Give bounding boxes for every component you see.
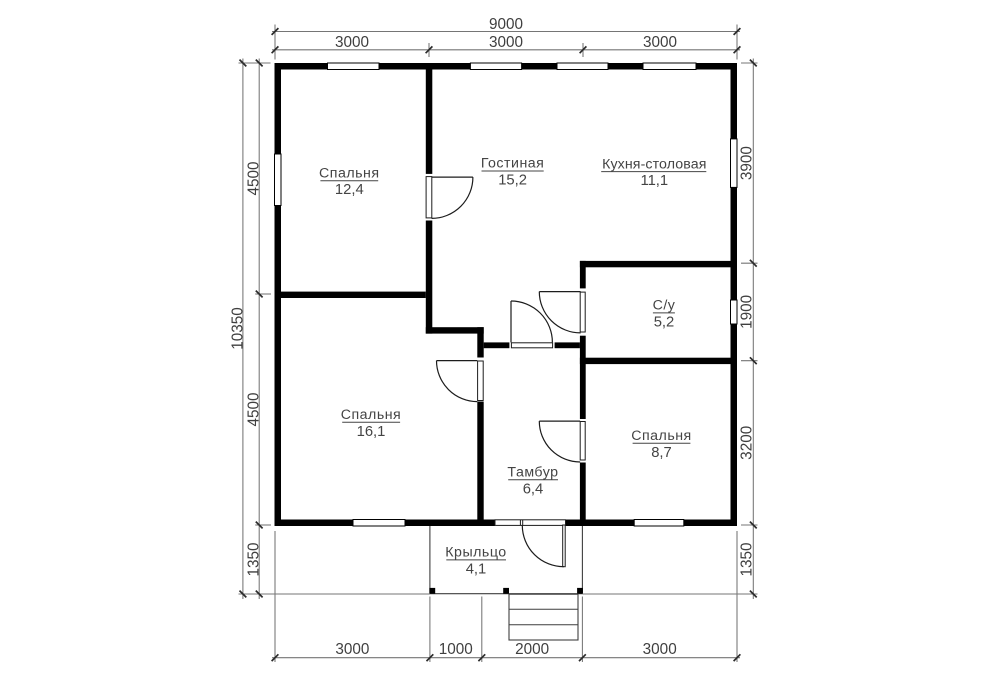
svg-text:8,7: 8,7 xyxy=(651,445,672,461)
svg-text:3000: 3000 xyxy=(643,641,677,658)
svg-text:3000: 3000 xyxy=(335,641,369,658)
svg-text:1350: 1350 xyxy=(245,542,262,576)
svg-text:3000: 3000 xyxy=(335,34,369,51)
svg-text:Крыльцо: Крыльцо xyxy=(445,545,506,561)
svg-text:Спальня: Спальня xyxy=(631,428,692,444)
svg-text:15,2: 15,2 xyxy=(498,173,527,189)
svg-text:6,4: 6,4 xyxy=(523,481,544,497)
svg-text:2000: 2000 xyxy=(515,641,549,658)
svg-text:3900: 3900 xyxy=(739,146,756,180)
svg-text:Спальня: Спальня xyxy=(319,165,380,181)
svg-text:1900: 1900 xyxy=(739,295,756,329)
svg-text:С/у: С/у xyxy=(653,298,676,314)
svg-text:9000: 9000 xyxy=(489,16,523,33)
svg-text:Гостиная: Гостиная xyxy=(481,156,545,172)
svg-text:4500: 4500 xyxy=(245,392,262,426)
svg-text:1000: 1000 xyxy=(439,641,473,658)
svg-text:11,1: 11,1 xyxy=(640,173,668,189)
svg-text:3000: 3000 xyxy=(643,34,677,51)
svg-text:10350: 10350 xyxy=(229,307,246,350)
svg-text:Тамбур: Тамбур xyxy=(507,465,558,481)
svg-text:4,1: 4,1 xyxy=(466,561,487,577)
svg-text:3000: 3000 xyxy=(489,34,523,51)
svg-text:Кухня-столовая: Кухня-столовая xyxy=(602,156,706,172)
svg-text:12,4: 12,4 xyxy=(335,182,364,198)
svg-text:Спальня: Спальня xyxy=(341,407,402,423)
svg-text:16,1: 16,1 xyxy=(357,424,386,440)
svg-text:5,2: 5,2 xyxy=(654,314,675,330)
svg-text:4500: 4500 xyxy=(245,161,262,195)
svg-text:3200: 3200 xyxy=(739,426,756,460)
svg-text:1350: 1350 xyxy=(739,542,756,576)
